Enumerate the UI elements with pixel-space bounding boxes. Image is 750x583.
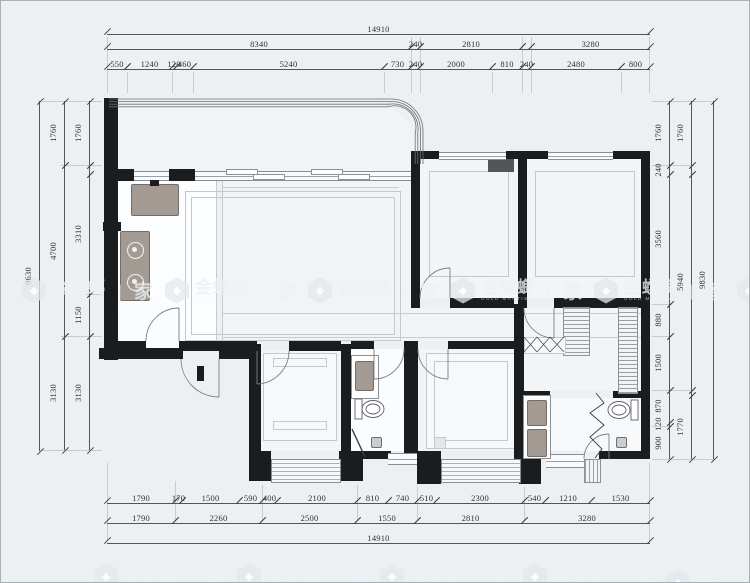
dim-segment: 1500: [182, 503, 239, 504]
dim-segment: 2100: [277, 503, 357, 504]
dim-segment: 9830: [713, 101, 714, 459]
dim-segment: 5240: [193, 69, 384, 70]
dim-segment: 3280: [524, 523, 650, 524]
dim-segment: 9630: [39, 101, 40, 451]
dim-segment: [522, 49, 531, 50]
dim-segment: 810: [357, 503, 388, 504]
dim-segment: 2000: [420, 69, 492, 70]
dim-segment: 1790: [107, 523, 175, 524]
dim-segment: 870: [669, 390, 670, 422]
dim-segment: 1760: [691, 101, 692, 165]
dim-segment: 1500: [669, 336, 670, 390]
dim-segment: 1240: [127, 69, 172, 70]
dim-segment: 5940: [691, 174, 692, 390]
dim-segment: 14910: [107, 543, 650, 544]
dim-segment: 3130: [89, 336, 90, 450]
dim-segment: 2500: [262, 523, 357, 524]
dim-segment: 3310: [89, 174, 90, 294]
dim-segment: 900: [669, 426, 670, 459]
dim-segment: 3130: [64, 336, 65, 450]
dim-segment: 1550: [357, 523, 417, 524]
dim-segment: 14910: [107, 34, 650, 35]
dim-segment: 2810: [417, 523, 524, 524]
dim-segment: 240: [411, 69, 420, 70]
dim-segment: 2480: [531, 69, 621, 70]
dim-segment: 1760: [89, 101, 90, 165]
dim-segment: 1770: [691, 395, 692, 459]
dim-segment: 240: [411, 49, 420, 50]
dim-segment: 1760: [669, 101, 670, 165]
dim-segment: 2300: [436, 503, 524, 504]
dim-segment: 1790: [107, 503, 175, 504]
dim-segment: 800: [621, 69, 650, 70]
dim-segment: 1150: [89, 294, 90, 336]
dim-segment: 880: [669, 304, 670, 336]
dim-segment: 2810: [420, 49, 522, 50]
dim-segment: 1760: [64, 101, 65, 165]
dim-segment: 3560: [669, 174, 670, 304]
dim-segment: 2260: [175, 523, 262, 524]
dim-segment: 8340: [107, 49, 411, 50]
floor-plan-drawing: 14910 8340 240 2810 3280 550 1240 120 46…: [0, 0, 750, 583]
dim-segment: 4700: [64, 165, 65, 336]
dim-segment: 1210: [545, 503, 591, 504]
dim-segment: 240: [522, 69, 531, 70]
dim-segment: 3280: [531, 49, 650, 50]
dim-segment: 740: [388, 503, 417, 504]
dim-segment: 810: [492, 69, 522, 70]
dim-segment: 1530: [591, 503, 650, 504]
